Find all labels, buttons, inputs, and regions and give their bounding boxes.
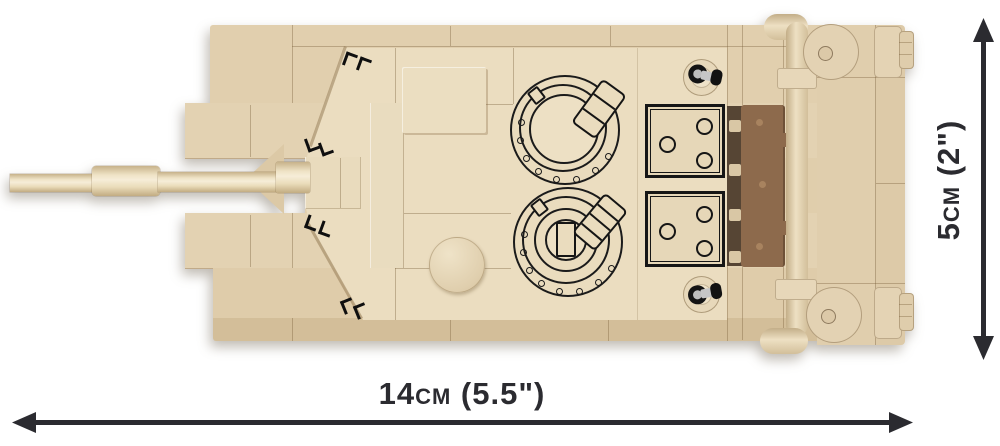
- panel-hole: [659, 223, 676, 240]
- rack-nub: [729, 164, 741, 176]
- brick-seam: [292, 318, 293, 341]
- panel-hole: [696, 206, 713, 223]
- hatch-bolt: [576, 288, 583, 295]
- hatch-bolt: [605, 153, 612, 160]
- turret-roof-strip: [370, 103, 404, 268]
- fender-stud: [821, 309, 836, 324]
- brick-seam: [250, 215, 251, 267]
- brick-seam: [608, 318, 609, 341]
- hatch-bolt: [553, 176, 560, 183]
- gun-barrel-base: [276, 162, 310, 193]
- rear-cylinder: [899, 31, 914, 69]
- turret: [305, 48, 727, 320]
- cylinder-rib: [899, 54, 912, 55]
- width-dimension-label: 14cm (5.5"): [262, 376, 662, 412]
- brick-seam: [395, 213, 511, 214]
- hatch-handle: [556, 222, 576, 257]
- hatch-bolt: [573, 176, 580, 183]
- hatch-bolt: [521, 231, 528, 238]
- rack-nub: [729, 209, 741, 221]
- gun-mantlet-block: [305, 157, 361, 209]
- panel-hole: [696, 240, 713, 257]
- brick-seam: [742, 25, 743, 105]
- hatch-bolt: [608, 265, 615, 272]
- tow-bar-elbow-bottom: [760, 328, 808, 354]
- gun-barrel: [158, 172, 278, 192]
- brick-seam: [292, 213, 293, 268]
- brick-seam: [450, 26, 451, 46]
- hatch-bolt: [526, 267, 533, 274]
- hatch-bolt: [556, 288, 563, 295]
- bore-evacuator: [92, 166, 160, 196]
- hatch-bolt: [535, 168, 542, 175]
- brick-seam: [637, 48, 638, 320]
- fender-stud: [818, 46, 833, 61]
- hatch-bolt: [518, 119, 525, 126]
- hatch-bolt: [592, 167, 599, 174]
- rack-nub: [729, 251, 741, 263]
- cylinder-rib: [899, 304, 912, 305]
- brick-seam: [876, 183, 905, 184]
- gun-barrel-tip: [10, 174, 94, 192]
- brick-seam: [292, 25, 293, 103]
- engine-deck-panel: [645, 191, 725, 267]
- height-dimension-label: 5cm (2"): [931, 120, 967, 241]
- tow-bar-bracket: [775, 279, 817, 300]
- rear-corner-block: [874, 287, 902, 339]
- hatch-bolt: [595, 279, 602, 286]
- panel-hole: [696, 118, 713, 135]
- fuel-cap: [429, 237, 485, 293]
- rack-nub: [729, 120, 741, 132]
- brick-seam: [610, 26, 611, 46]
- brick-seam: [340, 158, 341, 208]
- panel-hole: [696, 152, 713, 169]
- hatch-bolt: [538, 280, 545, 287]
- product-diagram: 14cm (5.5") 5cm (2"): [0, 0, 1000, 446]
- hatch-bolt: [520, 249, 527, 256]
- brick-seam: [450, 318, 451, 341]
- hatch-bolt: [517, 137, 524, 144]
- cylinder-rib: [899, 316, 912, 317]
- brick-seam: [742, 267, 743, 340]
- horizontal-dimension-line: [30, 420, 892, 425]
- vertical-dimension-line: [981, 38, 986, 340]
- turret-roof-block: [402, 67, 486, 133]
- hull-side-strip: [213, 318, 822, 341]
- brick-seam: [817, 283, 905, 284]
- rear-cylinder: [899, 293, 914, 331]
- panel-hole: [659, 136, 676, 153]
- hatch-bolt: [523, 155, 530, 162]
- brick-seam: [513, 48, 514, 104]
- engine-deck-panel: [645, 104, 725, 178]
- cylinder-rib: [899, 42, 912, 43]
- stowage-rack: [741, 105, 785, 267]
- brick-seam: [250, 105, 251, 157]
- rear-corner-block: [874, 26, 902, 78]
